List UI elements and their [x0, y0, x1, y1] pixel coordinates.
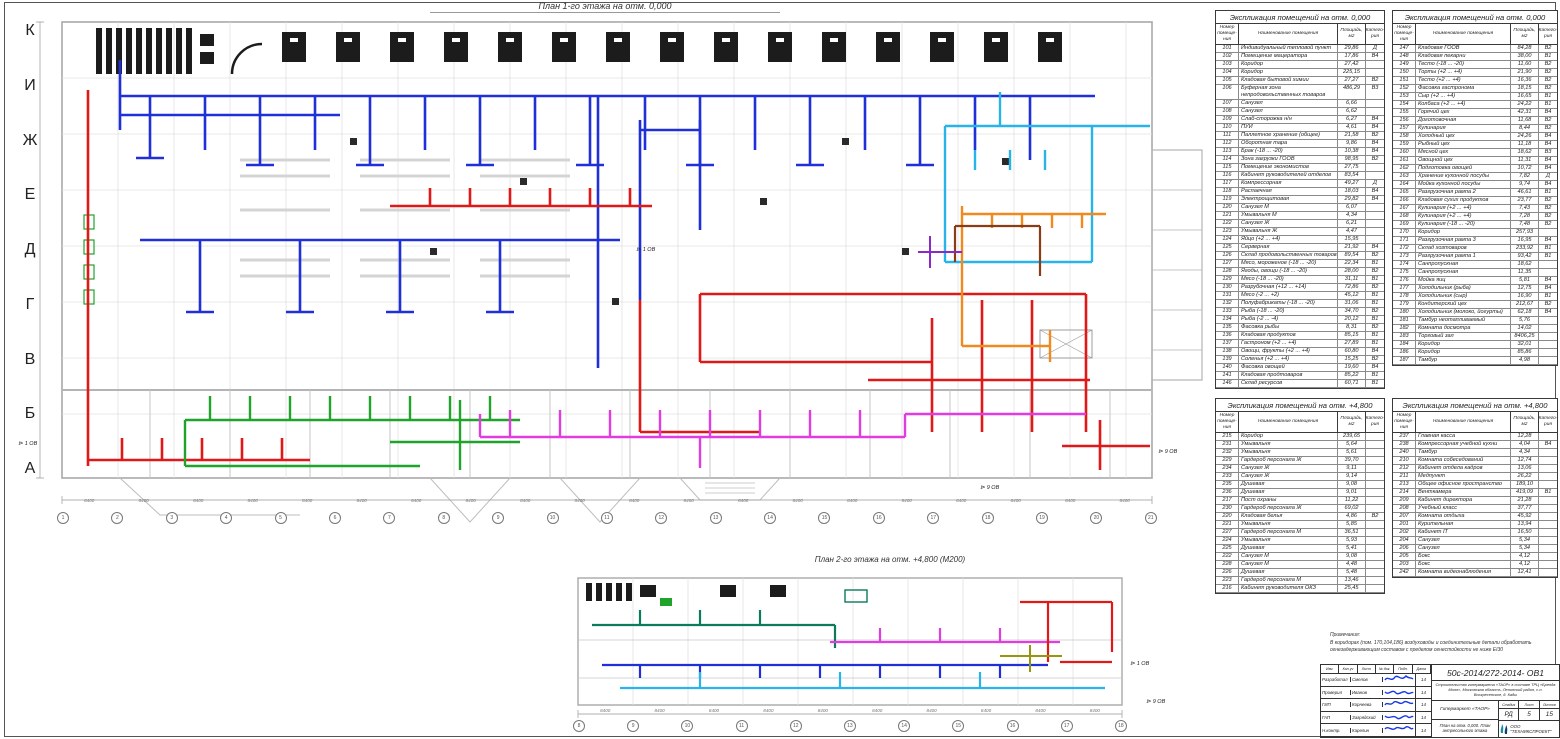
- cell-area: 419,09: [1511, 489, 1539, 496]
- cell-area: 16,95: [1511, 237, 1539, 244]
- cell-cat: [1539, 325, 1557, 332]
- sig-role: Н.контр.: [1321, 728, 1351, 733]
- cell-area: 7,43: [1511, 205, 1539, 212]
- table-body: 147Кладовая ГООВ84,28В2148Кладовая пекар…: [1393, 45, 1557, 364]
- cell-cat: В4: [1539, 237, 1557, 244]
- cell-name: Сыр (+2 ... +4): [1416, 93, 1511, 100]
- dimension-label: 8400: [662, 498, 717, 503]
- cell-num: 227: [1216, 529, 1239, 536]
- table-row: 225Душевая5,41: [1216, 545, 1384, 553]
- table-row: 161Овощной цех11,31В4: [1393, 157, 1557, 165]
- cell-name: Гардероб персонала Ж: [1239, 457, 1338, 464]
- cell-area: 85,15: [1338, 332, 1366, 339]
- axis-bubble: 3: [166, 512, 178, 524]
- table-row: 174Санпропускная18,62: [1393, 261, 1557, 269]
- cell-cat: [1366, 585, 1384, 592]
- plan2-duct-cyan: [620, 672, 1105, 688]
- cell-area: 36,51: [1338, 529, 1366, 536]
- table-row: 230Гардероб персонала Ж69,02: [1216, 505, 1384, 513]
- cell-area: 5,85: [1338, 521, 1366, 528]
- table-row: 238Компрессорная учебной кухни4,04В4: [1393, 441, 1557, 449]
- cell-cat: [1366, 457, 1384, 464]
- cell-area: 9,08: [1338, 553, 1366, 560]
- cell-area: 45,92: [1511, 513, 1539, 520]
- table-row: 128Ягоды, овощи (-18 ... -20)28,00В2: [1216, 268, 1384, 276]
- axis-bubble: 14: [898, 720, 910, 732]
- cell-name: Холодильник (рыба): [1416, 285, 1511, 292]
- dimension-label: 8400: [1043, 498, 1098, 503]
- cell-area: 5,41: [1338, 545, 1366, 552]
- table-row: 140Фасовка овощей19,60В4: [1216, 364, 1384, 372]
- dimension-label: 8400: [687, 708, 741, 713]
- table-row: 234Санузел Ж9,11: [1216, 465, 1384, 473]
- cell-num: 106: [1216, 85, 1239, 99]
- table-row: 170Коридор257,93: [1393, 229, 1557, 237]
- sig-name: Корнеева: [1351, 702, 1383, 707]
- dimension-label: 8400: [607, 498, 662, 503]
- cell-cat: Д: [1366, 45, 1384, 52]
- cell-cat: В4: [1366, 188, 1384, 195]
- cell-num: 216: [1216, 585, 1239, 592]
- cell-cat: [1366, 489, 1384, 496]
- cell-num: 126: [1216, 252, 1239, 259]
- axis-bubble: 10: [547, 512, 559, 524]
- cell-num: 242: [1393, 569, 1416, 576]
- cell-cat: В4: [1539, 157, 1557, 164]
- cell-num: 154: [1393, 101, 1416, 108]
- dimension-label: 8400: [117, 498, 172, 503]
- cell-cat: [1366, 497, 1384, 504]
- sig-header-cell: Дата: [1413, 665, 1431, 673]
- signature-row: ГИП Корнеева 14: [1321, 699, 1431, 712]
- cell-area: 29,86: [1338, 45, 1366, 52]
- cell-cat: В2: [1539, 213, 1557, 220]
- cell-name: Кабинет руководителей отделов: [1239, 172, 1338, 179]
- sig-header-cell: Подп.: [1394, 665, 1412, 673]
- cell-num: 226: [1216, 569, 1239, 576]
- cell-name: Кулинария (-18 ... -20): [1416, 221, 1511, 228]
- cell-area: 16,50: [1511, 529, 1539, 536]
- table-row: 149Тесто (-18 ... -20)11,60В2: [1393, 61, 1557, 69]
- cell-name: Умывальня: [1239, 441, 1338, 448]
- plan1-bay-dimensions: 8400840084008400840084008400840084008400…: [62, 498, 1152, 503]
- cell-num: 214: [1393, 489, 1416, 496]
- cell-area: 15,95: [1338, 236, 1366, 243]
- cell-name: Гардероб персонала Ж: [1239, 505, 1338, 512]
- sheet-title: План на отм. 0,000. План антресольного э…: [1432, 720, 1498, 738]
- cell-num: 112: [1216, 140, 1239, 147]
- table-row: 228Санузел М4,48: [1216, 561, 1384, 569]
- cell-num: 114: [1216, 156, 1239, 163]
- table-row: 215Коридор239,65: [1216, 433, 1384, 441]
- table-row: 222Санузел М9,08: [1216, 553, 1384, 561]
- cell-area: 8406,25: [1511, 333, 1539, 340]
- table-row: 138Овощи, фрукты (+2 ... +4)60,80В4: [1216, 348, 1384, 356]
- cell-name: Кладовая белья: [1239, 513, 1338, 520]
- cell-area: 18,03: [1338, 188, 1366, 195]
- table-row: 217Пост охраны11,22: [1216, 497, 1384, 505]
- table-row: 212Кабинет отдела кадров13,06: [1393, 465, 1557, 473]
- table-row: 237Главная касса12,28: [1393, 433, 1557, 441]
- table-row: 133Рыба (-18 ... -20)34,70В2: [1216, 308, 1384, 316]
- cell-num: 102: [1216, 53, 1239, 60]
- table-title: Экспликация помещений на отм. 0,000: [1216, 11, 1384, 24]
- cell-cat: [1539, 569, 1557, 576]
- cell-cat: [1366, 505, 1384, 512]
- cell-cat: [1539, 269, 1557, 276]
- signature-row: Проверил Иванов 14: [1321, 687, 1431, 700]
- cell-name: Доготовочная: [1416, 117, 1511, 124]
- table-row: 214Венткамера419,09В1: [1393, 489, 1557, 497]
- dimension-label: 8400: [989, 498, 1044, 503]
- cell-cat: В4: [1539, 141, 1557, 148]
- cell-cat: В1: [1539, 489, 1557, 496]
- cell-num: 125: [1216, 244, 1239, 251]
- col-header-area: Площадь, м2: [1511, 412, 1539, 432]
- cell-cat: [1539, 341, 1557, 348]
- plan2-duct-olive: [1000, 645, 1062, 672]
- dimension-label: 8400: [280, 498, 335, 503]
- table-row: 125Серверная21,92В4: [1216, 244, 1384, 252]
- cell-num: 232: [1216, 449, 1239, 456]
- cell-cat: В2: [1366, 308, 1384, 315]
- notes-title: Примечания:: [1330, 632, 1558, 639]
- cell-cat: В1: [1539, 293, 1557, 300]
- cell-num: 146: [1216, 380, 1239, 387]
- table-row: 111Паллетное хранение (общее)21,58В2: [1216, 132, 1384, 140]
- cell-num: 229: [1216, 457, 1239, 464]
- table-row: 110ПУИ4,61В4: [1216, 124, 1384, 132]
- axis-bubble: Ж: [23, 132, 38, 150]
- plan2-duct-red: [1020, 602, 1112, 662]
- table-row: 148Кладовая пекарни38,00В1: [1393, 53, 1557, 61]
- cell-name: Бокс: [1416, 561, 1511, 568]
- cell-area: 39,70: [1338, 457, 1366, 464]
- cell-area: 14,02: [1511, 325, 1539, 332]
- table-row: 152Фасовка гастронома18,15В2: [1393, 85, 1557, 93]
- col-header-num: Номер помеще- ния: [1393, 412, 1416, 432]
- cell-name: Кладовая бытовой химии: [1239, 77, 1338, 84]
- cell-num: 130: [1216, 284, 1239, 291]
- cell-num: 203: [1393, 561, 1416, 568]
- table-row: 147Кладовая ГООВ84,28В2: [1393, 45, 1557, 53]
- cell-cat: [1366, 228, 1384, 235]
- dimension-label: 8400: [498, 498, 553, 503]
- cell-cat: В1: [1366, 372, 1384, 379]
- table-row: 135Фасовка рыбы8,31В2: [1216, 324, 1384, 332]
- cell-cat: В4: [1366, 196, 1384, 203]
- cell-cat: [1366, 433, 1384, 440]
- cell-cat: В1: [1539, 93, 1557, 100]
- cell-num: 157: [1393, 125, 1416, 132]
- cell-name: Коридор: [1416, 349, 1511, 356]
- cell-area: 16,90: [1511, 293, 1539, 300]
- cell-name: Полуфабрикаты (-18 ... -20): [1239, 300, 1338, 307]
- cell-cat: В1: [1539, 189, 1557, 196]
- axis-bubble: 17: [1061, 720, 1073, 732]
- cell-num: 166: [1393, 197, 1416, 204]
- cell-name: Главная касса: [1416, 433, 1511, 440]
- table-row: 202Кабинет IT16,50: [1393, 529, 1557, 537]
- cell-name: Подготовка овощей: [1416, 165, 1511, 172]
- col-header-num: Номер помеще- ния: [1216, 24, 1239, 44]
- table-row: 158Холодный цех24,26В4: [1393, 133, 1557, 141]
- cell-num: 184: [1393, 341, 1416, 348]
- cell-num: 183: [1393, 333, 1416, 340]
- cell-cat: В1: [1539, 101, 1557, 108]
- cell-num: 176: [1393, 277, 1416, 284]
- col-header-name: Наименование помещения: [1416, 412, 1511, 432]
- cell-num: 150: [1393, 69, 1416, 76]
- cell-area: 11,68: [1511, 117, 1539, 124]
- cell-num: 224: [1216, 537, 1239, 544]
- dimension-label: 8400: [226, 498, 281, 503]
- cell-cat: [1539, 433, 1557, 440]
- cell-name: Комната собеседований: [1416, 457, 1511, 464]
- cell-cat: В3: [1366, 85, 1384, 99]
- cell-num: 116: [1216, 172, 1239, 179]
- table-row: 235Душевая9,08: [1216, 481, 1384, 489]
- table-row: 201Курительная13,94: [1393, 521, 1557, 529]
- axis-bubble: 8: [573, 720, 585, 732]
- cell-name: Санузел Ж: [1239, 220, 1338, 227]
- cell-name: Кулинария (+2 ... +4): [1416, 213, 1511, 220]
- cell-num: 171: [1393, 237, 1416, 244]
- cell-cat: В2: [1539, 221, 1557, 228]
- table-row: 229Гардероб персонала Ж39,70: [1216, 457, 1384, 465]
- cell-area: 225,15: [1338, 69, 1366, 76]
- cell-cat: В4: [1539, 133, 1557, 140]
- axis-bubble: 10: [681, 720, 693, 732]
- cell-cat: [1366, 577, 1384, 584]
- cell-area: 17,86: [1338, 53, 1366, 60]
- cell-name: Фасовка гастронома: [1416, 85, 1511, 92]
- cell-cat: В1: [1539, 245, 1557, 252]
- axis-bubble: 16: [1007, 720, 1019, 732]
- cell-area: 37,77: [1511, 505, 1539, 512]
- cell-cat: В2: [1539, 301, 1557, 308]
- table-row: 106Буферная зона непродовольственных тов…: [1216, 85, 1384, 100]
- cell-cat: [1539, 333, 1557, 340]
- cell-area: 5,34: [1511, 545, 1539, 552]
- cell-area: 4,48: [1338, 561, 1366, 568]
- cell-name: Овощной цех: [1416, 157, 1511, 164]
- cell-cat: В4: [1366, 244, 1384, 251]
- col-header-cat: Катего- рия: [1366, 24, 1384, 44]
- project-description: Строительство гипермаркета «ТАОР» в сост…: [1432, 681, 1559, 701]
- cell-cat: [1539, 529, 1557, 536]
- signature-scribble: [1383, 699, 1416, 711]
- cell-area: 27,27: [1338, 77, 1366, 84]
- cell-name: Фасовка рыбы: [1239, 324, 1338, 331]
- notes-block: Примечания: В коридорах (пом. 170,104,18…: [1330, 632, 1558, 653]
- cell-num: 234: [1216, 465, 1239, 472]
- cell-num: 110: [1216, 124, 1239, 131]
- cell-name: Бокс: [1416, 553, 1511, 560]
- cell-area: 85,22: [1338, 372, 1366, 379]
- cell-area: 11,35: [1511, 269, 1539, 276]
- cell-name: Санузел Ж: [1239, 465, 1338, 472]
- cell-area: 93,42: [1511, 253, 1539, 260]
- col-header-area: Площадь, м2: [1338, 24, 1366, 44]
- table-row: 146Склад ресурсов60,71В1: [1216, 380, 1384, 388]
- cell-area: 4,04: [1511, 441, 1539, 448]
- cell-area: 10,38: [1338, 148, 1366, 155]
- cell-num: 208: [1393, 505, 1416, 512]
- cell-num: 162: [1393, 165, 1416, 172]
- cell-area: 6,62: [1338, 108, 1366, 115]
- table-row: 120Санузел М6,07: [1216, 204, 1384, 212]
- table-row: 126Склад продовольственных товаров89,54В…: [1216, 252, 1384, 260]
- table-title: Экспликация помещений на отм. +4,800: [1393, 399, 1557, 412]
- cell-cat: В2: [1539, 77, 1557, 84]
- cell-area: 89,54: [1338, 252, 1366, 259]
- cell-name: Рыба (-18 ... -20): [1239, 308, 1338, 315]
- sig-header-cell: Лист: [1358, 665, 1376, 673]
- dimension-label: 8400: [796, 708, 850, 713]
- cell-num: 152: [1393, 85, 1416, 92]
- dimension-label: 8400: [444, 498, 499, 503]
- cell-num: 111: [1216, 132, 1239, 139]
- col-header-cat: Катего- рия: [1366, 412, 1384, 432]
- axis-bubble: 20: [1090, 512, 1102, 524]
- cell-name: Кондитерский цех: [1416, 301, 1511, 308]
- axis-bubble: 1: [57, 512, 69, 524]
- explication-table-0000-left: Экспликация помещений на отм. 0,000 Номе…: [1215, 10, 1385, 389]
- table-row: 109Слаб-сторожка н/н6,27В4: [1216, 116, 1384, 124]
- cell-cat: [1539, 449, 1557, 456]
- cell-name: Санузел: [1416, 537, 1511, 544]
- dimension-label: 8400: [335, 498, 390, 503]
- cell-name: Разгрузочная рампа 2: [1416, 189, 1511, 196]
- table-row: 134Рыба (-2 ... -4)20,12В1: [1216, 316, 1384, 324]
- cell-num: 103: [1216, 61, 1239, 68]
- cell-name: Электрощитовая: [1239, 196, 1338, 203]
- cell-num: 225: [1216, 545, 1239, 552]
- cell-cat: [1539, 229, 1557, 236]
- cell-num: 202: [1393, 529, 1416, 536]
- table-row: 209Кабинет директора21,28: [1393, 497, 1557, 505]
- col-header-cat: Катего- рия: [1539, 412, 1557, 432]
- cell-num: 173: [1393, 253, 1416, 260]
- cell-name: Кулинария (+2 ... +4): [1416, 205, 1511, 212]
- table-row: 112Оборотная тара9,86В4: [1216, 140, 1384, 148]
- cell-name: Санузел М: [1239, 204, 1338, 211]
- cell-num: 187: [1393, 357, 1416, 364]
- cell-cat: В4: [1539, 181, 1557, 188]
- table-row: 166Кладовая сухих продуктов23,77В2: [1393, 197, 1557, 205]
- table-row: 169Кулинария (-18 ... -20)7,48В2: [1393, 221, 1557, 229]
- plan2-bay-dimensions: 8400840084008400840084008400840084008400: [578, 708, 1122, 713]
- dimension-label: 8400: [771, 498, 826, 503]
- cell-cat: [1539, 497, 1557, 504]
- table-row: 130Разрубочная (+12 ... +14)72,86В2: [1216, 284, 1384, 292]
- cell-num: 209: [1393, 497, 1416, 504]
- cell-num: 120: [1216, 204, 1239, 211]
- system-flag: 1 ОВ: [636, 246, 655, 253]
- cell-area: 9,08: [1338, 481, 1366, 488]
- cell-num: 135: [1216, 324, 1239, 331]
- table-row: 162Подготовка овощей10,72В4: [1393, 165, 1557, 173]
- cell-area: 32,01: [1511, 341, 1539, 348]
- axis-bubble: 14: [764, 512, 776, 524]
- cell-name: Комната досмотра: [1416, 325, 1511, 332]
- dimension-label: 8400: [825, 498, 880, 503]
- cell-area: 28,00: [1338, 268, 1366, 275]
- cell-num: 115: [1216, 164, 1239, 171]
- cell-cat: [1366, 553, 1384, 560]
- cell-name: Разрубочная (+12 ... +14): [1239, 284, 1338, 291]
- cell-cat: [1366, 61, 1384, 68]
- sig-date: 14: [1416, 715, 1431, 720]
- cell-name: Умывальня: [1239, 521, 1338, 528]
- cell-num: 175: [1393, 269, 1416, 276]
- cell-cat: [1366, 569, 1384, 576]
- cell-cat: [1366, 545, 1384, 552]
- cell-cat: В1: [1539, 253, 1557, 260]
- axis-bubble: 4: [220, 512, 232, 524]
- dimension-label: 8400: [553, 498, 608, 503]
- sig-date: 14: [1416, 702, 1431, 707]
- table-row: 233Санузел Ж9,14: [1216, 473, 1384, 481]
- axis-bubble: 11: [736, 720, 748, 732]
- cell-num: 107: [1216, 100, 1239, 107]
- cell-cat: В2: [1366, 132, 1384, 139]
- drawing-sheet: План 1-го этажа на отм. 0,000 План 2-го …: [0, 0, 1560, 739]
- cell-num: 210: [1393, 457, 1416, 464]
- cell-name: Распаечная: [1239, 188, 1338, 195]
- cell-cat: В2: [1366, 356, 1384, 363]
- axis-bubble: Г: [26, 296, 35, 314]
- cell-name: Паллетное хранение (общее): [1239, 132, 1338, 139]
- cell-area: 4,47: [1338, 228, 1366, 235]
- stage-value: РД: [1499, 709, 1519, 720]
- table-row: 155Горячий цех42,31В4: [1393, 109, 1557, 117]
- table-row: 154Колбаса (+2 ... +4)24,22В1: [1393, 101, 1557, 109]
- cell-area: 5,93: [1338, 537, 1366, 544]
- col-header-name: Наименование помещения: [1416, 24, 1511, 44]
- cell-num: 108: [1216, 108, 1239, 115]
- cell-area: 38,00: [1511, 53, 1539, 60]
- cell-num: 163: [1393, 173, 1416, 180]
- cell-area: 19,60: [1338, 364, 1366, 371]
- cell-num: 109: [1216, 116, 1239, 123]
- cell-area: 9,01: [1338, 489, 1366, 496]
- table-row: 127Мясо, мороженое (-18 ... -20)22,34В1: [1216, 260, 1384, 268]
- cell-name: Коридор: [1239, 433, 1338, 440]
- dimension-label: 8400: [959, 708, 1013, 713]
- cell-name: Мясо (-2 ... +2): [1239, 292, 1338, 299]
- cell-cat: [1539, 457, 1557, 464]
- cell-cat: В1: [1366, 316, 1384, 323]
- cell-cat: [1366, 172, 1384, 179]
- table-row: 240Тамбур4,34: [1393, 449, 1557, 457]
- table-row: 141Кладовая продтоваров85,22В1: [1216, 372, 1384, 380]
- axis-bubble: 17: [927, 512, 939, 524]
- cell-name: Помещение экономистов: [1239, 164, 1338, 171]
- cell-name: Душевая: [1239, 489, 1338, 496]
- cell-cat: В1: [1366, 260, 1384, 267]
- table-row: 226Душевая5,48: [1216, 569, 1384, 577]
- col-header-area: Площадь, м2: [1511, 24, 1539, 44]
- table-row: 173Разгрузочная рампа 193,42В1: [1393, 253, 1557, 261]
- axis-bubble: 8: [438, 512, 450, 524]
- table-row: 216Кабинет руководителя ОКЗ25,45: [1216, 585, 1384, 593]
- table-row: 163Хранение кухонной посуды7,82Д: [1393, 173, 1557, 181]
- cell-area: 60,71: [1338, 380, 1366, 387]
- cell-name: Коридор: [1239, 69, 1338, 76]
- cell-num: 118: [1216, 188, 1239, 195]
